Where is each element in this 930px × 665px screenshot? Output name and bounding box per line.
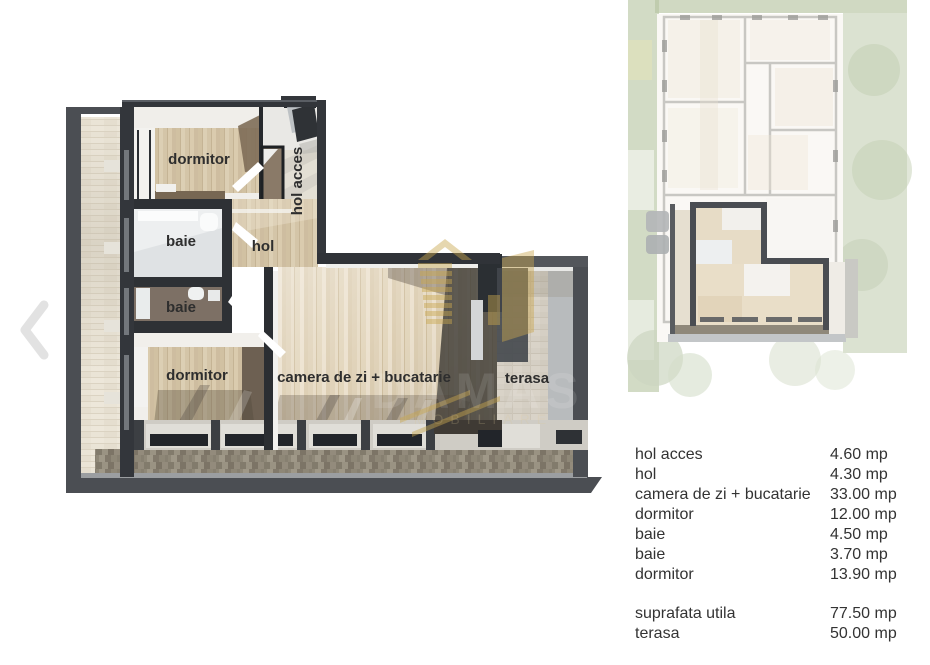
svg-text:hol acces: hol acces bbox=[635, 446, 703, 463]
svg-text:terasa: terasa bbox=[635, 625, 680, 642]
svg-text:77.50 mp: 77.50 mp bbox=[830, 605, 897, 622]
svg-text:IMOBILIARE: IMOBILIARE bbox=[403, 411, 553, 427]
svg-text:dormitor: dormitor bbox=[168, 151, 230, 168]
svg-text:baie: baie bbox=[635, 546, 665, 563]
svg-text:dormitor: dormitor bbox=[635, 506, 694, 523]
svg-text:camera de zi + bucatarie: camera de zi + bucatarie bbox=[635, 486, 811, 503]
svg-text:4.60 mp: 4.60 mp bbox=[830, 446, 888, 463]
svg-text:baie: baie bbox=[635, 526, 665, 543]
svg-text:13.90 mp: 13.90 mp bbox=[830, 566, 897, 583]
svg-text:50.00 mp: 50.00 mp bbox=[830, 625, 897, 642]
svg-text:baie: baie bbox=[166, 233, 196, 250]
svg-text:camera de zi + bucatarie: camera de zi + bucatarie bbox=[277, 369, 451, 386]
svg-text:3.70 mp: 3.70 mp bbox=[830, 546, 888, 563]
svg-text:4.50 mp: 4.50 mp bbox=[830, 526, 888, 543]
svg-text:hol: hol bbox=[252, 238, 275, 255]
svg-text:33.00 mp: 33.00 mp bbox=[830, 486, 897, 503]
svg-text:baie: baie bbox=[166, 299, 196, 316]
svg-text:12.00 mp: 12.00 mp bbox=[830, 506, 897, 523]
svg-text:dormitor: dormitor bbox=[166, 367, 228, 384]
svg-text:dormitor: dormitor bbox=[635, 566, 694, 583]
svg-text:4.30 mp: 4.30 mp bbox=[830, 466, 888, 483]
svg-text:hol acces: hol acces bbox=[289, 147, 306, 215]
svg-text:suprafata utila: suprafata utila bbox=[635, 605, 736, 622]
svg-text:hol: hol bbox=[635, 466, 656, 483]
svg-text:terasa: terasa bbox=[505, 370, 550, 387]
